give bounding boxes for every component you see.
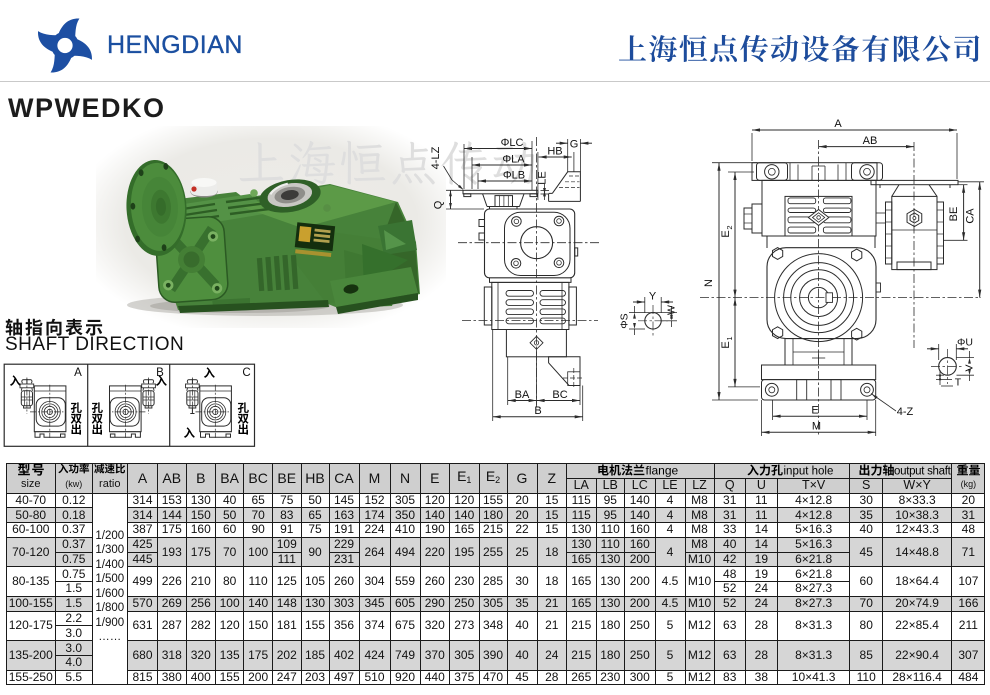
svg-text:HB: HB xyxy=(547,146,562,158)
svg-text:4-Z: 4-Z xyxy=(897,406,914,418)
svg-text:1: 1 xyxy=(725,336,734,340)
svg-text:A: A xyxy=(74,367,82,379)
svg-text:4-LZ: 4-LZ xyxy=(430,146,442,169)
svg-text:N: N xyxy=(703,279,715,287)
svg-text:2: 2 xyxy=(725,225,734,229)
svg-text:LE: LE xyxy=(537,171,549,184)
svg-text:A: A xyxy=(834,118,842,130)
svg-text:M: M xyxy=(812,421,821,433)
svg-text:ΦU: ΦU xyxy=(957,337,973,349)
svg-text:ΦS: ΦS xyxy=(619,313,631,328)
svg-text:CA: CA xyxy=(965,208,977,224)
svg-text:V: V xyxy=(964,364,976,371)
svg-text:B: B xyxy=(156,367,164,379)
svg-text:E: E xyxy=(811,405,818,417)
svg-text:T: T xyxy=(955,377,962,389)
svg-text:Y: Y xyxy=(649,291,657,303)
svg-text:BC: BC xyxy=(552,389,567,401)
svg-text:E: E xyxy=(720,341,732,348)
svg-text:B: B xyxy=(534,405,541,417)
svg-text:Q: Q xyxy=(433,200,445,209)
svg-text:BE: BE xyxy=(948,207,960,222)
svg-text:AB: AB xyxy=(863,135,878,147)
svg-text:W: W xyxy=(666,305,678,315)
svg-text:E: E xyxy=(720,230,732,237)
svg-text:C: C xyxy=(242,367,250,379)
svg-text:ΦLC: ΦLC xyxy=(501,137,524,149)
svg-text:ΦLA: ΦLA xyxy=(502,154,525,166)
svg-text:G: G xyxy=(570,139,579,151)
svg-text:ΦLB: ΦLB xyxy=(503,170,525,182)
svg-text:BA: BA xyxy=(515,389,530,401)
